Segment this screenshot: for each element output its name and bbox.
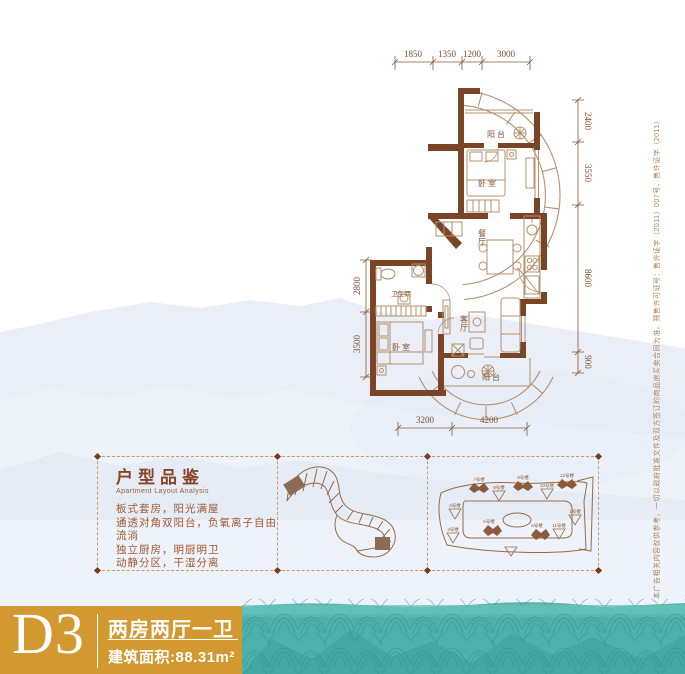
- site-label: 7号楼: [473, 476, 485, 483]
- room-labels: 阳台 卧室 餐厅 卫生间 客厅 卧室 阳台: [391, 129, 507, 382]
- floor-plan: 阳台 卧室 餐厅 卫生间 客厅 卧室 阳台 1850 1350 1200: [0, 0, 685, 674]
- label-balcony-bottom: 阳台: [482, 372, 502, 382]
- unit-code: D3: [12, 600, 85, 667]
- dim-left-2: 3500: [352, 335, 362, 354]
- label-balcony-top: 阳台: [487, 129, 507, 139]
- unit-banner: D3 两房两厅一卫 建筑面积:88.31m²: [0, 606, 242, 674]
- dim-top-2: 1350: [438, 49, 457, 59]
- site-label: 1号楼: [569, 508, 581, 515]
- dim-right-3: 8600: [583, 269, 593, 288]
- dim-top-1: 1850: [404, 49, 423, 59]
- label-bathroom: 卫生间: [391, 289, 411, 298]
- legal-disclaimer: 本广告相关内容仅供参考，一切以政府批准文件及双方签订的商品房买卖合同为准。预售许…: [652, 119, 664, 599]
- label-bedroom-bottom: 卧室: [392, 342, 412, 352]
- dim-bottom-2: 4200: [480, 415, 499, 425]
- analysis-line: 通透对角双阳台，负氧离子自由流淌: [116, 517, 277, 544]
- analysis-line: 独立厨房，明厨明卫: [116, 544, 277, 558]
- site-label: 9号楼: [517, 474, 529, 481]
- dim-left-1: 2800: [352, 277, 362, 296]
- dim-right-2: 3550: [583, 164, 593, 183]
- label-bedroom-top: 卧室: [478, 178, 498, 188]
- dim-top-4: 3000: [497, 49, 516, 59]
- analysis-line: 动静分区，干湿分离: [116, 557, 277, 571]
- floor-plate-box: [277, 456, 428, 571]
- site-label: 11号楼: [552, 522, 566, 529]
- analysis-box: 户型品鉴 Apartment Layout Analysis 板式套房，阳光满屋…: [97, 456, 278, 571]
- site-label: 2号楼: [449, 502, 461, 509]
- banner-vertical-divider: [97, 614, 98, 668]
- site-label: 5号楼: [483, 518, 495, 525]
- wave-pattern: [242, 599, 685, 674]
- dimension-labels: 1850 1350 1200 3000 2400 3550 8600 900 2…: [352, 49, 593, 425]
- analysis-line: 板式套房，阳光满屋: [116, 503, 277, 517]
- analysis-title: 户型品鉴: [116, 469, 277, 487]
- site-label: 6号楼: [531, 522, 543, 529]
- site-plan-box: 7号楼 8号楼 9号楼 10号楼 12号楼 2号楼 3号楼 5号楼 6号楼 1号…: [427, 456, 599, 571]
- site-label: 12号楼: [560, 472, 575, 479]
- floorplan-poster: 阳台 卧室 餐厅 卫生间 客厅 卧室 阳台 1850 1350 1200: [0, 0, 685, 674]
- floor-plate-diagram: [277, 457, 426, 570]
- site-label: 8号楼: [493, 484, 505, 491]
- label-dining: 餐厅: [478, 229, 486, 246]
- dim-right-1: 2400: [583, 112, 593, 131]
- layout-type: 两房两厅一卫: [108, 613, 238, 642]
- area-label: 建筑面积:88.31m²: [108, 646, 235, 667]
- unit-code-box: D3: [0, 606, 97, 674]
- dim-right-4: 900: [583, 355, 593, 369]
- site-plan-diagram: 7号楼 8号楼 9号楼 10号楼 12号楼 2号楼 3号楼 5号楼 6号楼 1号…: [427, 457, 597, 570]
- site-label: 10号楼: [540, 482, 555, 489]
- analysis-subtitle: Apartment Layout Analysis: [116, 488, 277, 495]
- banner-horizontal-divider: [108, 639, 238, 640]
- dim-top-3: 1200: [463, 49, 482, 59]
- dim-bottom-1: 3200: [416, 415, 435, 425]
- site-label: 3号楼: [447, 526, 459, 533]
- label-living: 客厅: [460, 314, 468, 332]
